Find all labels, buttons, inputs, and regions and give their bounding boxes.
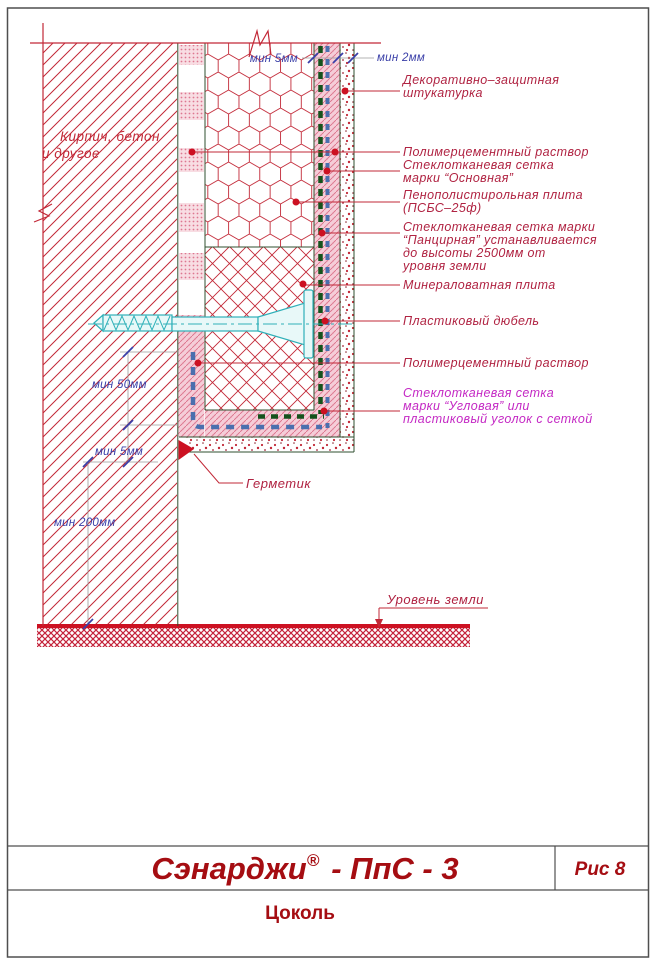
dim-side-5: мин 5мм: [95, 446, 143, 458]
label-mesh-corner: Стеклотканевая сетка: [403, 386, 554, 400]
label-mortar-bottom: Полимерцементный раствор: [403, 356, 589, 370]
drawing-sheet: Кирпич, бетон и другое: [0, 0, 657, 965]
label-foam-plate: Пенополистирольная плита: [403, 188, 583, 202]
dim-top-stucco: мин 2мм: [377, 52, 425, 64]
ground-level-callout: Уровень земли: [375, 592, 488, 628]
label-mesh-armor-3: до высоты 2500мм от: [403, 246, 546, 260]
dim-top-mortar: мин 5мм: [250, 53, 298, 65]
brick-wall: Кирпич, бетон и другое: [42, 43, 177, 626]
label-mesh-main-2: марки “Основная”: [403, 171, 514, 185]
annotation-labels: Декоративно–защитная штукатурка Полимерц…: [401, 73, 597, 426]
label-foam-plate-2: (ПСБС–25ф): [403, 201, 482, 215]
ground-line: [37, 624, 470, 628]
label-mesh-armor-2: “Панцирная” устанавливается: [403, 233, 597, 247]
ground-hatch: [37, 628, 470, 647]
drawing-subtitle: Цоколь: [265, 903, 335, 924]
ground: [37, 624, 470, 647]
label-stucco-2: штукатурка: [403, 86, 483, 100]
dim-side-50: мин 50мм: [92, 379, 147, 391]
wall-material-label: Кирпич, бетон: [60, 129, 160, 144]
plinth-detail-drawing: Кирпич, бетон и другое: [0, 0, 657, 965]
title-text: Сэнарджи®- ПпС - 3: [151, 851, 458, 886]
label-mesh-main: Стеклотканевая сетка: [403, 158, 554, 172]
label-mesh-armor-4: уровня земли: [402, 259, 487, 273]
label-dowel: Пластиковый дюбель: [403, 314, 539, 328]
foam-plate: [205, 43, 314, 247]
label-stucco: Декоративно–защитная: [401, 73, 559, 87]
label-mesh-armor: Стеклотканевая сетка марки: [403, 220, 595, 234]
label-mesh-corner-3: пластиковый уголок с сеткой: [403, 412, 593, 426]
title-block: Сэнарджи®- ПпС - 3 Рис 8 Цоколь: [8, 846, 649, 924]
wall-material-label-2: и другое: [42, 146, 100, 161]
label-mineral-wool: Минераловатная плита: [403, 278, 556, 292]
label-ground-level: Уровень земли: [386, 592, 484, 607]
adhesive-layer: [178, 43, 205, 315]
dim-side-200: мин 200мм: [54, 517, 115, 529]
label-mesh-corner-2: марки “Угловая” или: [403, 399, 530, 413]
figure-number: Рис 8: [575, 859, 626, 880]
label-mortar-outer: Полимерцементный раствор: [403, 145, 589, 159]
label-sealant: Герметик: [246, 476, 311, 491]
